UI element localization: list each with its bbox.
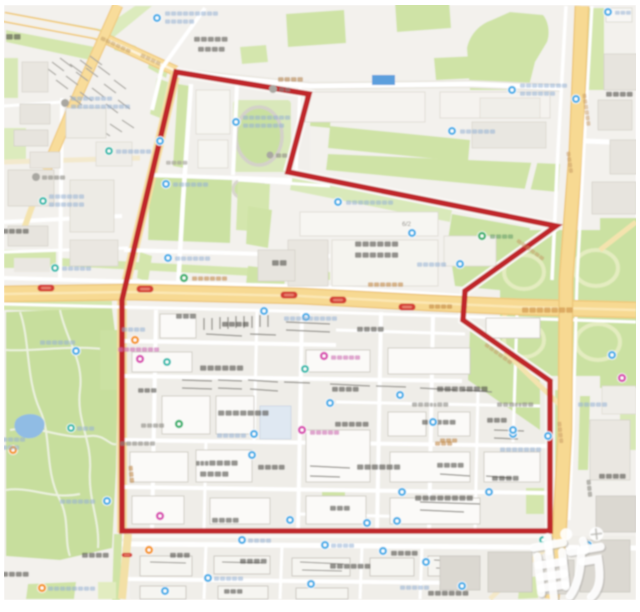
svg-text:6/2: 6/2: [402, 221, 411, 228]
